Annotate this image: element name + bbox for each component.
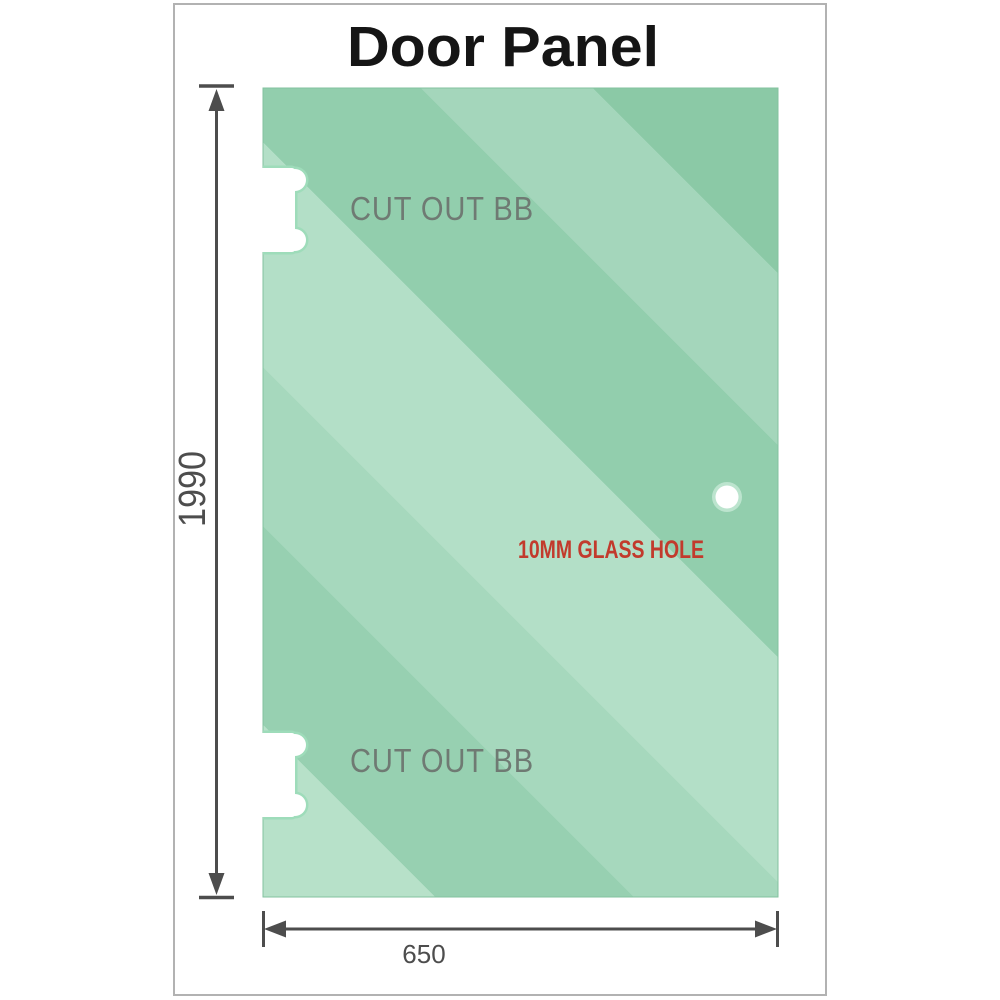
- glass-hole-label: 10MM GLASS HOLE: [518, 536, 704, 564]
- door-panel-diagram: Door Panel: [0, 0, 1000, 1000]
- page-title: Door Panel: [347, 15, 659, 79]
- diagram-svg: Door Panel: [0, 0, 1000, 1000]
- height-dimension-label: 1990: [172, 451, 214, 527]
- cutout-bottom-label: CUT OUT BB: [350, 742, 534, 779]
- width-dimension-label: 650: [402, 939, 445, 969]
- glass-hole-icon: [716, 486, 739, 509]
- cutout-top-label: CUT OUT BB: [350, 190, 534, 227]
